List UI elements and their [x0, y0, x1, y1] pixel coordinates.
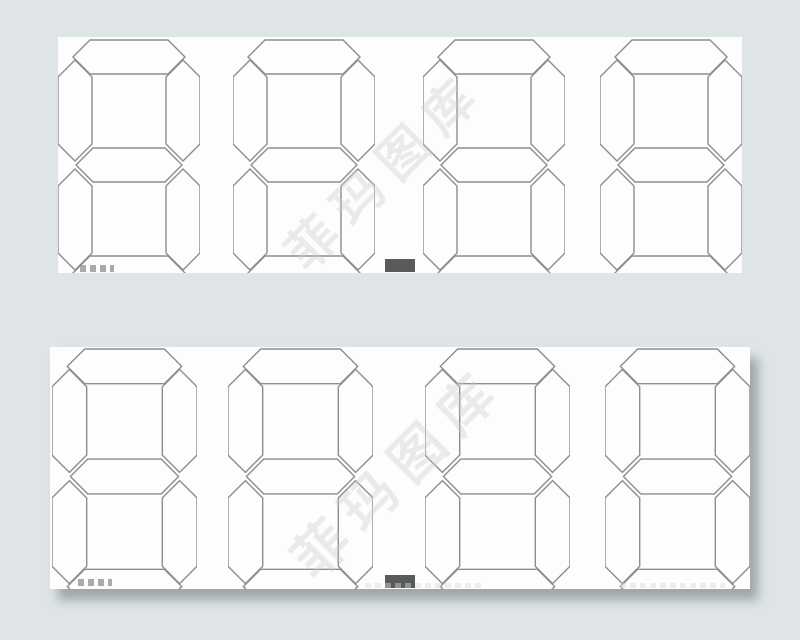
segment-f	[600, 60, 634, 161]
segment-e	[423, 169, 457, 270]
seven-segment-digit-1	[52, 348, 197, 589]
segment-f	[233, 60, 267, 161]
segment-e	[605, 481, 640, 584]
seven-segment-digit-3	[423, 39, 565, 273]
segment-a	[438, 40, 550, 74]
segment-a	[620, 349, 734, 384]
segment-b	[341, 60, 375, 161]
segment-f	[52, 369, 87, 472]
segment-g	[618, 148, 724, 182]
segment-b	[535, 369, 570, 472]
segment-e	[425, 481, 460, 584]
segment-g	[443, 459, 551, 494]
segment-g	[70, 459, 178, 494]
segment-f	[58, 60, 92, 161]
segment-c	[708, 169, 742, 270]
segment-b	[708, 60, 742, 161]
segment-a	[243, 349, 357, 384]
segment-e	[233, 169, 267, 270]
segment-d	[438, 256, 550, 273]
segment-f	[425, 369, 460, 472]
segment-a	[615, 40, 727, 74]
segment-c	[166, 169, 200, 270]
stock-graphic-canvas: 菲玛图库菲玛图库	[0, 0, 800, 640]
segment-g	[623, 459, 731, 494]
segment-g	[76, 148, 182, 182]
segment-e	[228, 481, 263, 584]
segment-c	[535, 481, 570, 584]
segment-a	[440, 349, 554, 384]
segment-c	[338, 481, 373, 584]
decimal-point	[385, 259, 415, 272]
segment-e	[58, 169, 92, 270]
segment-a	[67, 349, 181, 384]
seven-segment-digit-4	[600, 39, 742, 273]
segment-a	[73, 40, 185, 74]
segment-e	[600, 169, 634, 270]
segment-g	[441, 148, 547, 182]
seven-segment-digit-2	[228, 348, 373, 589]
seven-segment-digit-1	[58, 39, 200, 273]
segment-c	[715, 481, 750, 584]
watermark-remnant-mark	[620, 583, 725, 588]
segment-g	[251, 148, 357, 182]
segment-a	[248, 40, 360, 74]
segment-b	[531, 60, 565, 161]
display-panel-bottom: 菲玛图库	[50, 347, 750, 589]
watermark-remnant-mark	[365, 583, 485, 588]
segment-b	[166, 60, 200, 161]
segment-d	[248, 256, 360, 273]
segment-d	[243, 569, 357, 589]
segment-c	[162, 481, 197, 584]
watermark-remnant-mark	[80, 265, 114, 272]
segment-e	[52, 481, 87, 584]
segment-f	[423, 60, 457, 161]
seven-segment-digit-2	[233, 39, 375, 273]
watermark-remnant-mark	[78, 579, 112, 586]
segment-f	[228, 369, 263, 472]
segment-f	[605, 369, 640, 472]
display-panel-top: 菲玛图库	[58, 37, 742, 273]
segment-d	[615, 256, 727, 273]
segment-b	[338, 369, 373, 472]
segment-g	[246, 459, 354, 494]
segment-b	[715, 369, 750, 472]
segment-c	[341, 169, 375, 270]
seven-segment-digit-3	[425, 348, 570, 589]
segment-c	[531, 169, 565, 270]
seven-segment-digit-4	[605, 348, 750, 589]
segment-b	[162, 369, 197, 472]
